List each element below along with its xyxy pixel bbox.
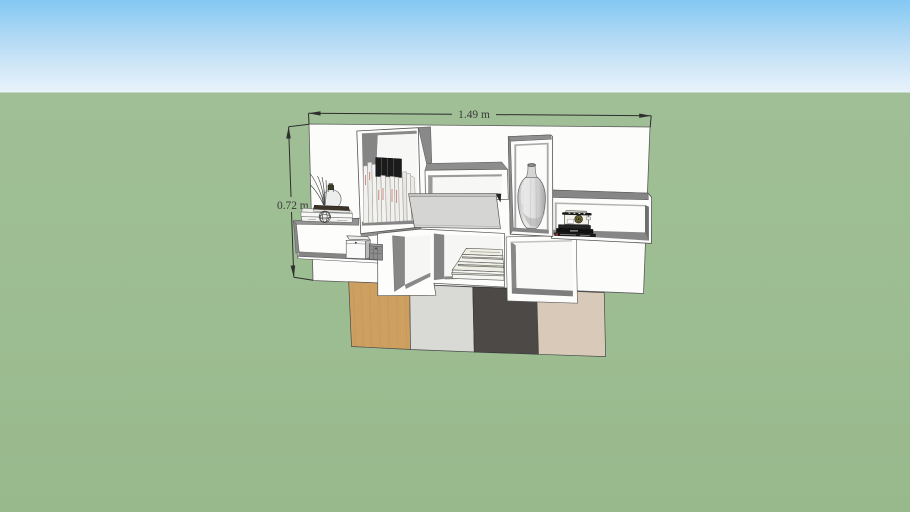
- svg-text:1.49 m: 1.49 m: [458, 109, 490, 121]
